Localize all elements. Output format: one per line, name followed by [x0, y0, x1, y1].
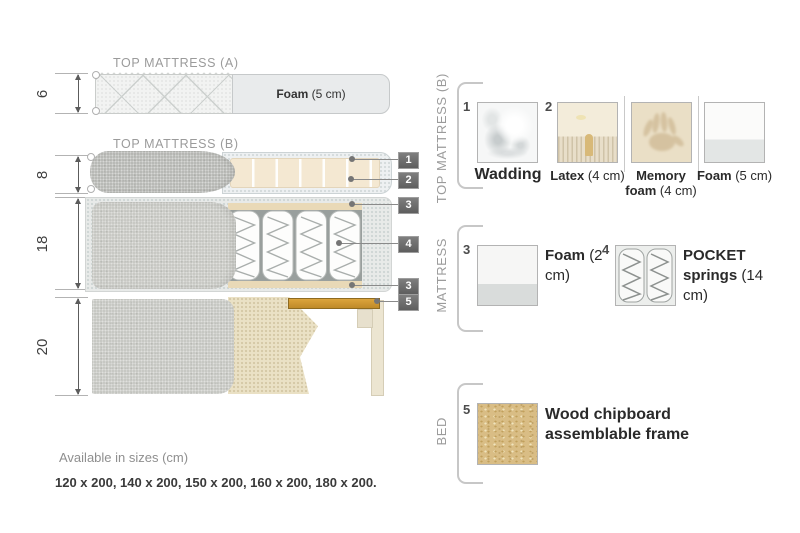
foam-2cm-caption: Foam (2 cm)	[545, 246, 607, 286]
callout-2: 2	[398, 172, 419, 189]
callout-3-top: 3	[398, 197, 419, 214]
dimension-top-mattress-a: 6	[55, 73, 88, 114]
legend-item-number: 1	[463, 99, 470, 114]
dimension-bed: 20	[55, 297, 88, 396]
sizes-list: 120 x 200, 140 x 200, 150 x 200, 160 x 2…	[55, 475, 377, 490]
callout-dot	[374, 298, 380, 304]
callout-dot	[349, 282, 355, 288]
legend-divider	[624, 96, 625, 172]
legend-section-bed-title: BED	[434, 417, 450, 446]
sizes-title: Available in sizes (cm)	[59, 450, 188, 465]
legend-item-number: 5	[463, 402, 470, 417]
legend-section-mattress-title: MATTRESS	[434, 238, 450, 313]
foam-caption: Foam (5 cm)	[694, 168, 775, 183]
legend-section-top-mattress-b-title: TOP MATTRESS (B)	[434, 73, 450, 203]
legend-item-number: 3	[463, 242, 470, 257]
pocket-springs-caption: POCKET springs (14 cm)	[683, 246, 767, 306]
pocket-springs-cutaway	[228, 203, 362, 288]
dimension-arrow	[78, 199, 79, 288]
wooden-slat	[288, 298, 380, 309]
memory-foam-image	[631, 102, 692, 163]
fabric-loop	[92, 107, 100, 115]
dimension-value: 8	[35, 160, 51, 190]
legend-item-number: 2	[545, 99, 552, 114]
wadding-caption: Wadding	[462, 167, 554, 182]
legend-divider	[698, 96, 699, 172]
quilted-wadding-section	[95, 74, 233, 114]
fabric-cover-b	[90, 151, 235, 193]
callout-line	[379, 301, 398, 302]
callout-dot	[348, 176, 354, 182]
dimension-mattress: 18	[55, 197, 88, 290]
bed-frame-bracket	[357, 309, 373, 328]
top-mattress-b-title: TOP MATTRESS (B)	[113, 137, 239, 151]
wadding-image	[477, 102, 538, 163]
foam-blocks-layer	[230, 158, 380, 188]
memory-foam-caption: Memory foam (4 cm)	[622, 168, 700, 198]
bed-construction-diagram: TOP MATTRESS (A) 6 Foam (5 cm) TOP MATTR…	[0, 0, 800, 533]
fabric-cover-mattress	[92, 202, 236, 289]
callout-line	[341, 243, 398, 244]
latex-caption: Latex (4 cm)	[545, 168, 630, 183]
callout-5: 5	[398, 294, 419, 311]
dimension-value: 18	[35, 229, 51, 259]
dimension-arrow	[78, 299, 79, 394]
callout-4: 4	[398, 236, 419, 253]
latex-image	[557, 102, 618, 163]
callout-line	[354, 159, 398, 160]
foam-a-label: Foam (5 cm)	[276, 87, 345, 101]
bed-fabric-cream	[228, 297, 318, 394]
callout-dot	[349, 156, 355, 162]
callout-line	[354, 285, 398, 286]
callout-dot	[336, 240, 342, 246]
foam-image	[704, 102, 765, 163]
fabric-loop	[87, 185, 95, 193]
foam-2cm-image	[477, 245, 538, 306]
callout-line	[353, 179, 398, 180]
callout-3-bottom: 3	[398, 278, 419, 295]
foam-section-a: Foam (5 cm)	[232, 74, 390, 114]
callout-1: 1	[398, 152, 419, 169]
dimension-value: 6	[35, 79, 51, 109]
pocket-springs-image	[615, 245, 676, 306]
fabric-loop	[87, 153, 95, 161]
chipboard-image	[477, 403, 538, 465]
bed-fabric-gray	[92, 299, 234, 394]
callout-line	[354, 204, 398, 205]
callout-dot	[349, 201, 355, 207]
dimension-arrow	[78, 157, 79, 192]
dimension-value: 20	[35, 332, 51, 362]
dimension-top-mattress-b: 8	[55, 155, 88, 194]
chipboard-caption: Wood chipboard assemblable frame	[545, 405, 695, 445]
dimension-arrow	[78, 75, 79, 112]
legend-item-number: 4	[602, 242, 609, 257]
fabric-loop	[92, 71, 100, 79]
top-mattress-a-title: TOP MATTRESS (A)	[113, 56, 239, 70]
